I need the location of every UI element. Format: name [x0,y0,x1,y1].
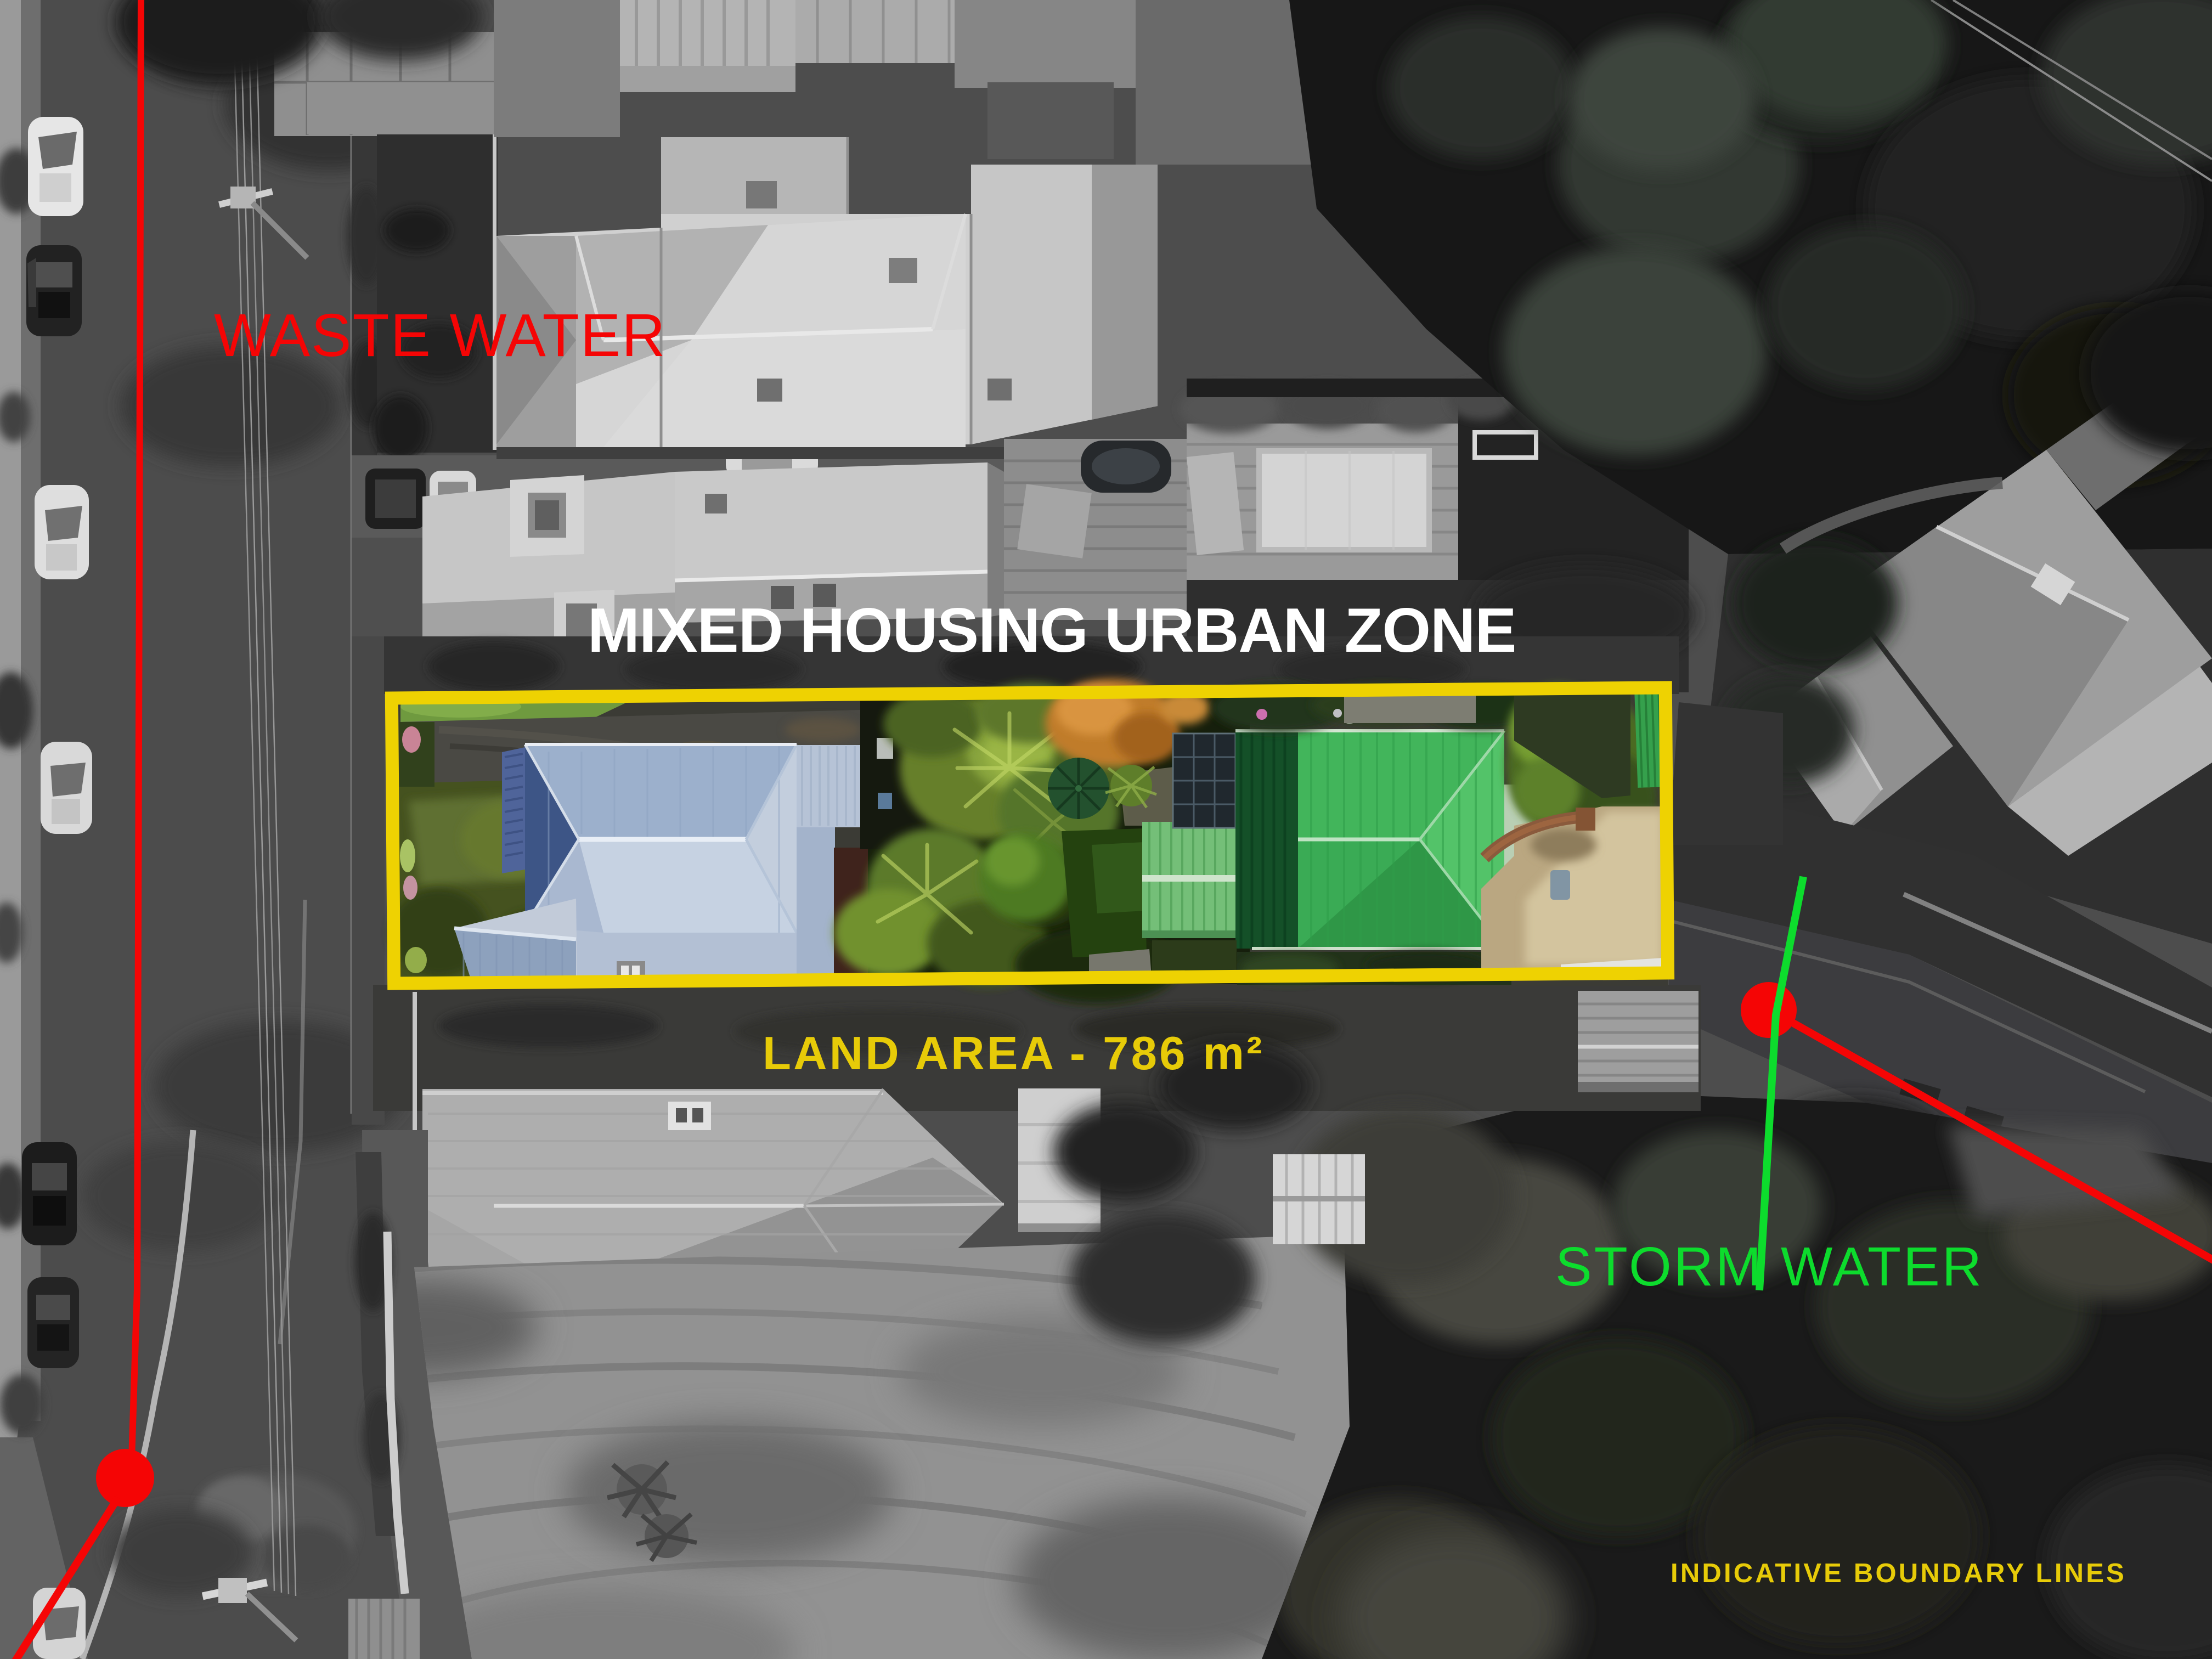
svg-text:MIXED HOUSING URBAN ZONE: MIXED HOUSING URBAN ZONE [588,596,1516,665]
svg-text:WASTE WATER: WASTE WATER [214,302,667,369]
svg-text:STORM WATER: STORM WATER [1555,1236,1984,1297]
svg-text:INDICATIVE BOUNDARY LINES: INDICATIVE BOUNDARY LINES [1671,1559,2126,1588]
svg-text:LAND AREA - 786 m²: LAND AREA - 786 m² [763,1028,1265,1080]
